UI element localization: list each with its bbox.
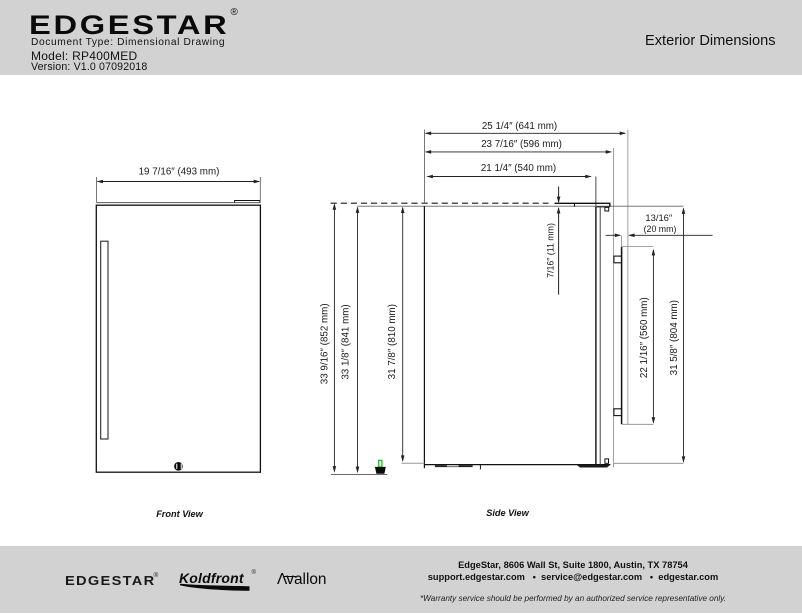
svg-text:Front View: Front View (156, 509, 203, 519)
svg-text:(20 mm): (20 mm) (644, 224, 677, 234)
svg-text:25 1/4″ (641 mm): 25 1/4″ (641 mm) (482, 121, 557, 132)
svg-text:22 1/16″ (560 mm): 22 1/16″ (560 mm) (639, 297, 650, 378)
svg-text:13/16″: 13/16″ (645, 212, 672, 223)
svg-text:Side View: Side View (486, 508, 529, 518)
svg-text:7/16″ (11 mm): 7/16″ (11 mm) (545, 223, 555, 278)
svg-text:19 7/16″ (493 mm): 19 7/16″ (493 mm) (139, 166, 220, 177)
svg-text:33 9/16″ (852 mm): 33 9/16″ (852 mm) (320, 303, 331, 384)
svg-text:31 5/8″ (804 mm): 31 5/8″ (804 mm) (669, 300, 680, 375)
svg-text:33 1/8″ (841 mm): 33 1/8″ (841 mm) (341, 304, 352, 379)
svg-text:21 1/4″ (540 mm): 21 1/4″ (540 mm) (481, 163, 556, 174)
svg-text:31 7/8″ (810 mm): 31 7/8″ (810 mm) (387, 304, 398, 379)
svg-text:23 7/16″ (596 mm): 23 7/16″ (596 mm) (481, 139, 562, 150)
